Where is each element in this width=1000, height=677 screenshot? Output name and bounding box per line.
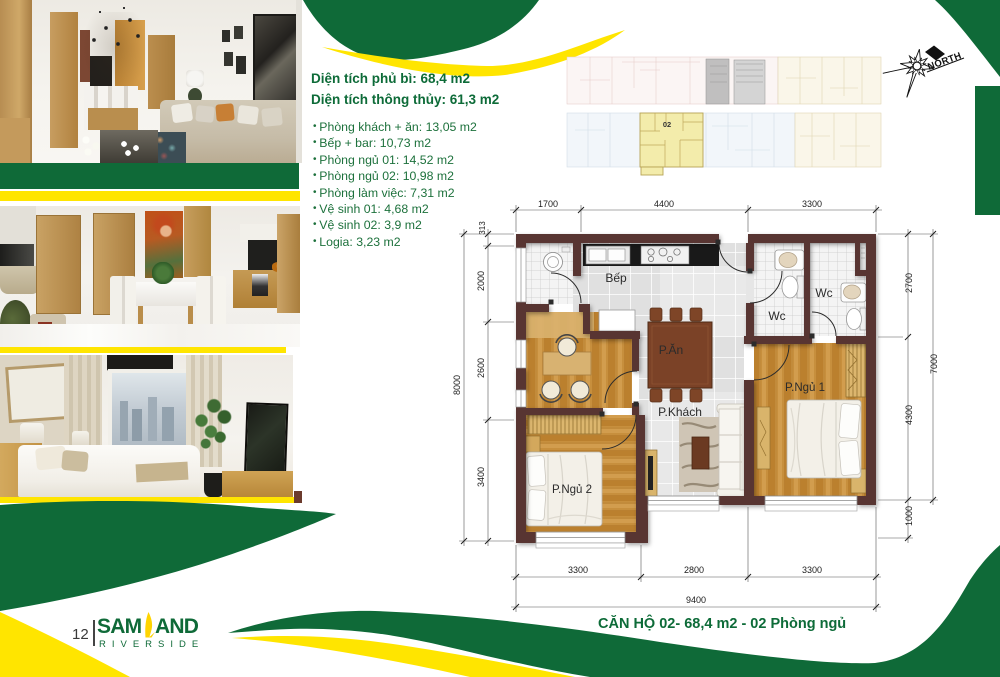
svg-text:2800: 2800	[684, 565, 704, 575]
svg-text:P.Ngủ 2: P.Ngủ 2	[552, 484, 592, 496]
svg-text:8000: 8000	[452, 375, 462, 395]
svg-text:2000: 2000	[476, 271, 486, 291]
svg-text:1700: 1700	[538, 199, 558, 209]
svg-text:P.Ngủ 1: P.Ngủ 1	[785, 382, 825, 394]
svg-text:7000: 7000	[929, 354, 939, 374]
svg-text:Wc: Wc	[768, 309, 785, 323]
svg-text:P.Khách: P.Khách	[658, 405, 702, 419]
svg-text:Bếp: Bếp	[605, 271, 627, 285]
svg-text:02: 02	[663, 120, 671, 129]
svg-text:SAM: SAM	[97, 615, 142, 638]
svg-text:AND: AND	[155, 615, 199, 638]
svg-text:2600: 2600	[476, 358, 486, 378]
svg-text:4300: 4300	[904, 405, 914, 425]
svg-text:P.Ăn: P.Ăn	[659, 342, 683, 357]
svg-text:3300: 3300	[802, 199, 822, 209]
svg-text:RIVERSIDE: RIVERSIDE	[99, 639, 204, 650]
svg-text:313: 313	[478, 221, 487, 235]
svg-text:3300: 3300	[568, 565, 588, 575]
svg-text:Wc: Wc	[815, 286, 832, 300]
svg-text:3300: 3300	[802, 565, 822, 575]
svg-text:4400: 4400	[654, 199, 674, 209]
svg-text:3400: 3400	[476, 467, 486, 487]
svg-text:2700: 2700	[904, 273, 914, 293]
svg-text:9400: 9400	[686, 595, 706, 605]
svg-text:1000: 1000	[904, 506, 914, 526]
